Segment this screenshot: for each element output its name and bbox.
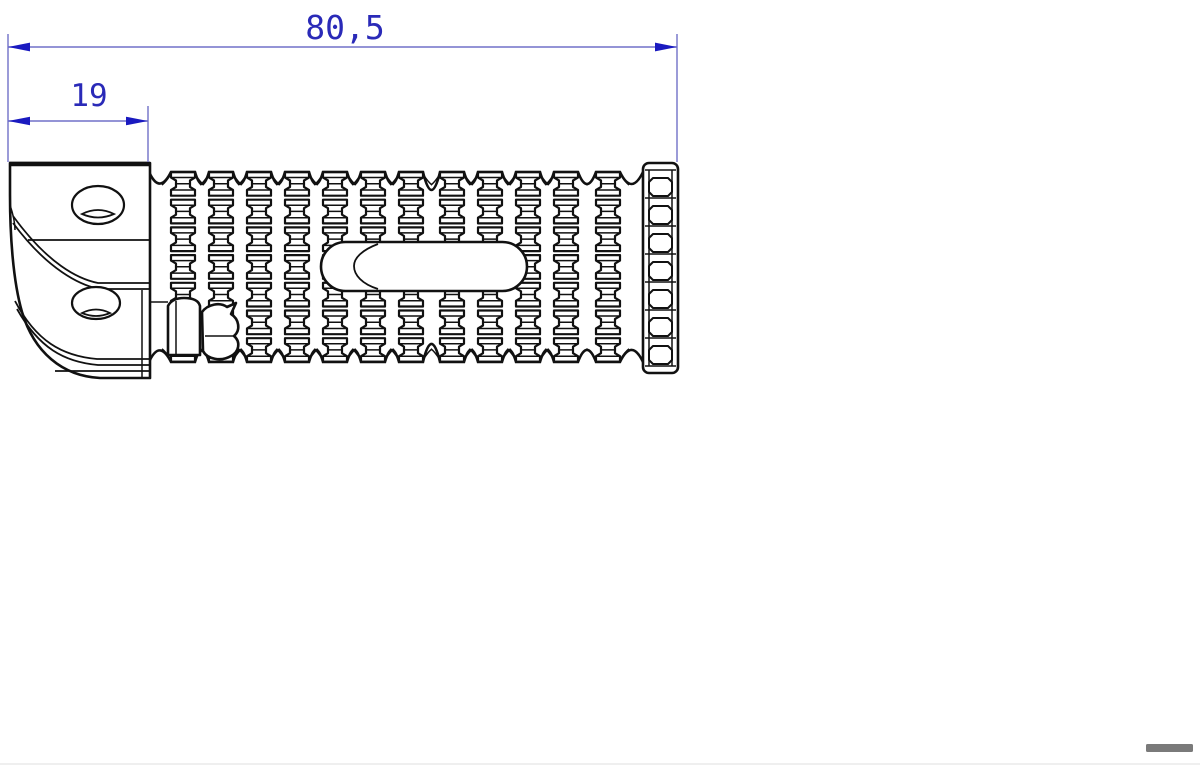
arrowhead-right	[655, 43, 677, 52]
end-cap-rib	[649, 234, 672, 252]
boss-block	[168, 298, 200, 355]
arrowhead-left	[8, 117, 30, 126]
slot-outline	[321, 242, 527, 291]
end-cap	[643, 163, 678, 373]
arrowhead-right	[126, 117, 148, 126]
dimension-bracket-width: 19	[8, 78, 148, 162]
end-cap-rib	[649, 206, 672, 224]
dimension-value-overall: 80,5	[305, 8, 384, 47]
arrowhead-left	[8, 43, 30, 52]
end-cap-rib	[649, 318, 672, 336]
peg-slot	[321, 242, 527, 291]
technical-drawing-canvas: 80,5 19	[0, 0, 1200, 763]
dimension-overall-length: 80,5	[8, 8, 677, 162]
mounting-bracket	[9, 163, 150, 378]
end-cap-rib	[649, 290, 672, 308]
boss-pawl	[202, 303, 238, 359]
dimension-value-bracket: 19	[70, 78, 107, 114]
scrollbar-thumb[interactable]	[1146, 744, 1193, 752]
lower-mount-hole	[72, 287, 120, 319]
end-cap-rib	[649, 178, 672, 196]
drawing-page: 80,5 19	[0, 0, 1200, 765]
end-cap-rib	[649, 346, 672, 364]
end-cap-rib	[649, 262, 672, 280]
